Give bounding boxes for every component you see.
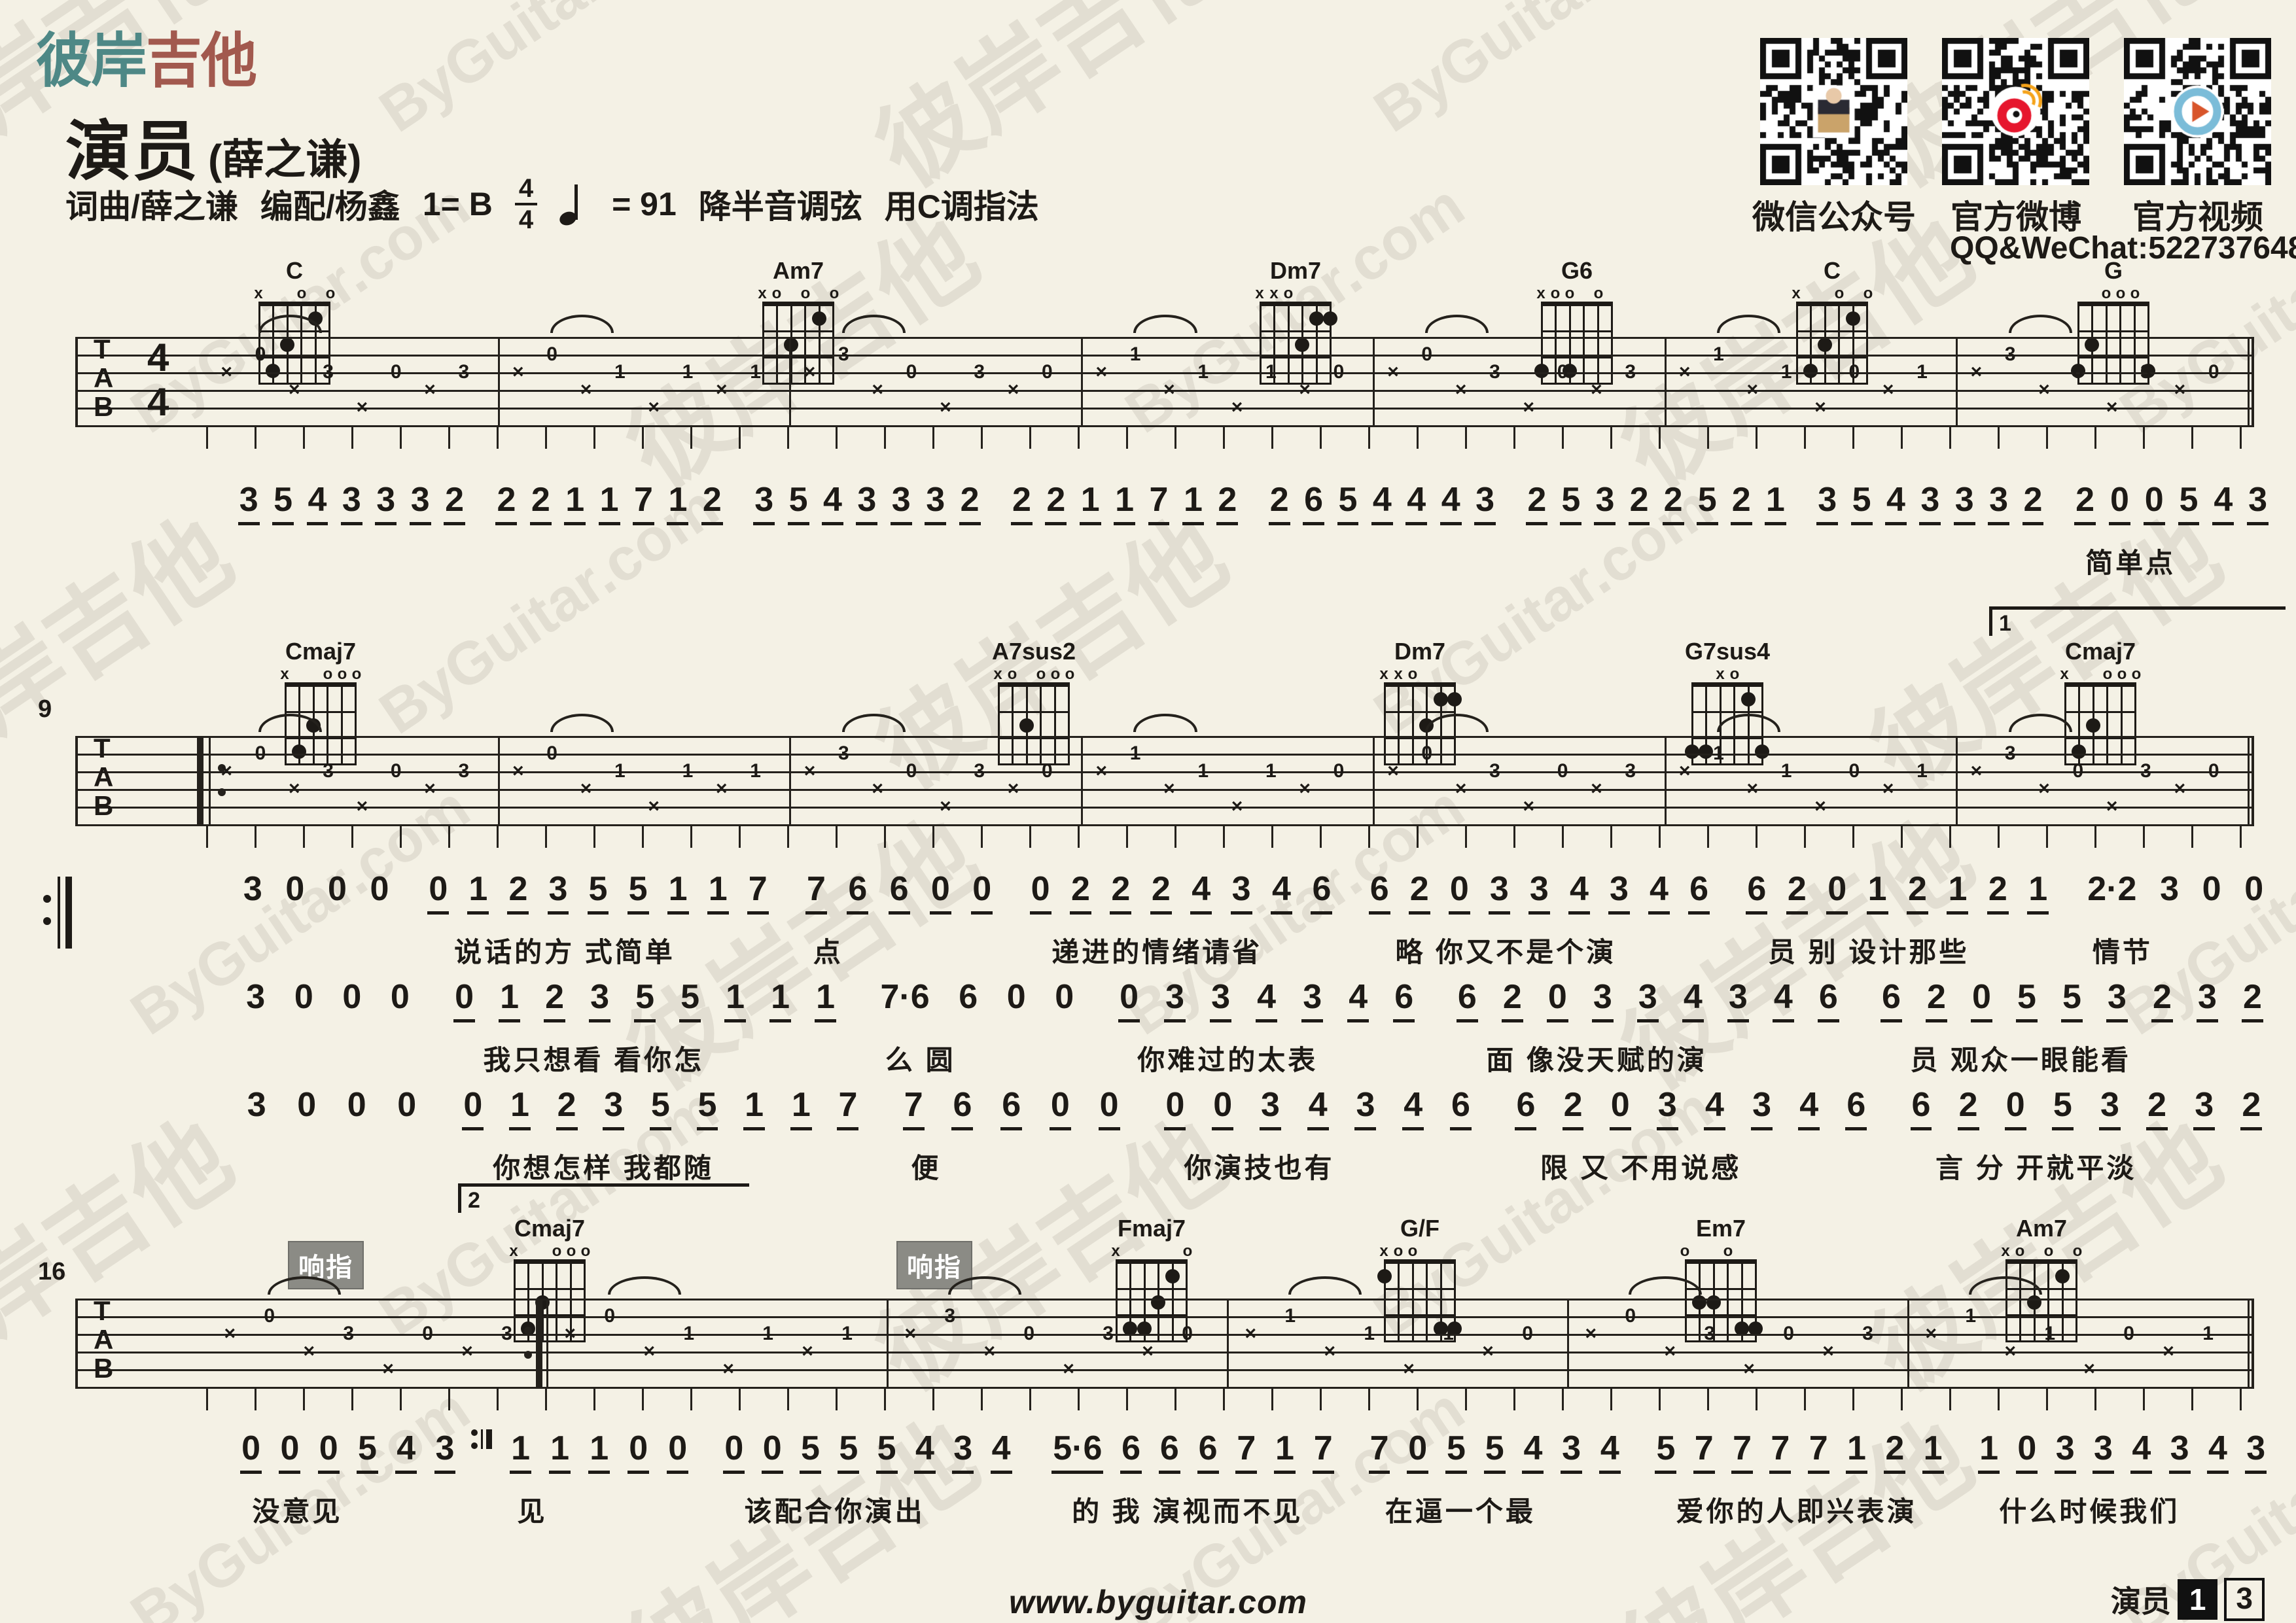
chord-marker: x <box>254 285 262 303</box>
jianpu-number: 5 <box>634 978 656 1022</box>
tab-note-glyph: × <box>512 760 524 782</box>
tab-note-glyph: 0 <box>391 361 402 383</box>
jianpu-number: 6 <box>1369 870 1390 915</box>
tab-note-glyph: 0 <box>1421 742 1432 765</box>
tab-note-glyph: 3 <box>1489 361 1500 383</box>
jianpu-number: 0 <box>284 870 306 911</box>
jianpu-number: 2 <box>1216 481 1238 525</box>
staff-left-edge <box>75 736 78 824</box>
jianpu-number: 0 <box>369 870 391 911</box>
lyric-text: 你演技也有 <box>1184 1146 1335 1186</box>
tab-note-glyph: 1 <box>1713 742 1724 765</box>
jianpu-number: 0 <box>1099 1086 1120 1130</box>
tab-note-glyph: 0 <box>1023 1323 1034 1345</box>
jianpu-number: 0 <box>296 1086 317 1127</box>
lyric-text: 爱你的人即兴表演 <box>1676 1490 1917 1529</box>
jianpu-number: 3 <box>246 1086 268 1127</box>
jianpu-number: 4 <box>914 1429 936 1474</box>
tab-note-glyph: × <box>224 1323 236 1345</box>
jianpu-number: 0 <box>1050 1086 1071 1130</box>
jianpu-number: 1 <box>1867 870 1888 915</box>
chord-marker: o <box>2116 285 2126 303</box>
tab-note-glyph: 0 <box>1333 760 1345 782</box>
jianpu-number: 2 <box>530 481 552 525</box>
jianpu-number: 3 <box>2099 1086 2121 1130</box>
jianpu-number: 4 <box>991 1429 1012 1474</box>
jianpu-number: 1 <box>1765 481 1786 525</box>
time-sig-bottom: 4 <box>147 383 169 422</box>
barline <box>1665 736 1667 824</box>
jianpu-number: 3 <box>753 481 775 525</box>
jianpu-measure: 11100见 <box>492 1429 704 1474</box>
jianpu-number: 1 <box>667 481 688 525</box>
tab-note-glyph: × <box>289 778 300 800</box>
tab-staff: TAB44×0×3×0×3×0×1×1×1×3×0×3×0×1×1×1×0×0×… <box>75 337 2254 428</box>
jianpu-measure: 76600便 <box>880 1086 1140 1130</box>
tab-clef-letter: T <box>94 1297 111 1325</box>
footer-url: www.byguitar.com <box>1009 1583 1307 1621</box>
jianpu-number: 1 <box>599 481 620 525</box>
jianpu-number: 7 <box>747 870 769 915</box>
jianpu-number: 0 <box>2243 870 2265 911</box>
jianpu-number: 5 <box>1445 1429 1467 1474</box>
jianpu-number: 0 <box>667 1429 688 1474</box>
staff-left-edge <box>75 1299 78 1387</box>
tab-note-glyph: × <box>424 778 436 800</box>
credits-label: 词曲/薛之谦 <box>65 181 238 228</box>
chord-name: Cmaj7 <box>268 638 373 665</box>
page-number-current: 1 <box>2178 1579 2218 1620</box>
tab-note-glyph: 3 <box>1625 760 1636 782</box>
jianpu-measure: 10334343什么时候我们 <box>1960 1429 2282 1474</box>
jianpu-measure: 2211712 <box>480 481 736 525</box>
chord-open-mute-markers: xooo <box>746 285 851 302</box>
chord-marker: o <box>297 285 307 303</box>
tab-note-glyph: 0 <box>2073 361 2084 383</box>
tab-note-glyph: 3 <box>459 361 470 383</box>
chord-name: Am7 <box>1989 1215 2094 1242</box>
jianpu-number: 5 <box>627 870 649 915</box>
jianpu-number: 7 <box>837 1086 858 1130</box>
jianpu-number: 2 <box>1663 481 1684 525</box>
jianpu-number: 2 <box>701 481 723 525</box>
jianpu-number: 1 <box>667 870 689 915</box>
jianpu-number: 4 <box>1682 978 1704 1022</box>
barline <box>1956 736 1958 824</box>
fret-line <box>2077 330 2149 332</box>
jianpu-measure: 02224346递进的情绪请省 <box>1011 870 1348 915</box>
chord-open-mute-markers: xooo <box>2048 665 2153 682</box>
jianpu-number: 1 <box>743 1086 765 1130</box>
chord-marker: o <box>567 1242 576 1261</box>
jianpu-number: 0 <box>327 870 348 911</box>
jianpu-number: 2 <box>1563 1086 1584 1130</box>
jianpu-number: 0 <box>318 1429 340 1474</box>
jianpu-number: 1 <box>549 1429 571 1474</box>
tab-note-glyph: × <box>1814 396 1826 419</box>
jianpu-number: 0 <box>930 870 951 915</box>
jianpu-number: 4 <box>1371 481 1393 525</box>
tab-note-glyph: 1 <box>1781 760 1792 782</box>
tab-note-glyph: × <box>648 396 660 419</box>
jianpu-number: 5 <box>1851 481 1873 525</box>
jianpu-number: 0 <box>627 1429 649 1474</box>
tab-note-glyph: 1 <box>1265 361 1277 383</box>
jianpu-number: 5 <box>272 481 294 525</box>
chord-marker: o <box>1863 285 1873 303</box>
note-stems <box>206 1388 2248 1410</box>
jianpu-number: 3 <box>242 870 264 911</box>
tab-note-glyph: × <box>2163 1340 2174 1363</box>
tab-note-glyph: × <box>802 1340 813 1363</box>
tab-note-glyph: 3 <box>2005 343 2016 366</box>
jianpu-number: 7 <box>1369 1429 1390 1474</box>
tab-note-glyph: 0 <box>546 742 557 765</box>
tab-note-glyph: × <box>357 396 368 419</box>
jianpu-number: 5 <box>357 1429 378 1474</box>
tab-note-glyph: 0 <box>906 361 917 383</box>
measure-number: 9 <box>38 695 52 724</box>
jianpu-number: 1 <box>1080 481 1101 525</box>
jianpu-number: 6 <box>1303 481 1324 525</box>
tab-note-glyph: × <box>1523 795 1534 818</box>
jianpu-number: 3 <box>603 1086 624 1130</box>
staff-line <box>75 337 2254 339</box>
fret-line <box>1384 1288 1456 1290</box>
chord-marker: o <box>1008 665 1017 684</box>
jianpu-number: 3 <box>2169 1429 2191 1474</box>
tab-note-glyph: × <box>1455 778 1467 800</box>
note-stems <box>206 427 2248 449</box>
jianpu-number: 4 <box>2212 481 2234 525</box>
jianpu-measure: 00555434该配合你演出 <box>706 1429 1027 1474</box>
jianpu-number: 0 <box>2005 1086 2026 1130</box>
jianpu-number: 6 <box>957 978 979 1019</box>
tab-note-glyph: × <box>940 396 951 419</box>
chord-marker: o <box>1551 285 1561 303</box>
jianpu-number: 0 <box>396 1086 417 1127</box>
chord-marker: o <box>1408 1242 1418 1261</box>
chord-marker: o <box>581 1242 591 1261</box>
tab-note-glyph: × <box>2106 795 2118 818</box>
jianpu-number: 2 <box>1070 870 1091 915</box>
tab-note-glyph: × <box>940 795 951 818</box>
jianpu-number: 6 <box>1688 870 1710 915</box>
jianpu-number: 6 <box>1159 1429 1180 1474</box>
lyric-text: 你想怎样 我都随 <box>493 1146 714 1186</box>
jianpu-number: 6 <box>1881 978 1902 1022</box>
lyric-text: 什么时候我们 <box>1999 1490 2180 1529</box>
chord-marker: x <box>2001 1242 2009 1261</box>
jianpu-measure: 012355111我只想看 看你怎 <box>433 978 855 1022</box>
jianpu-number: 5 <box>1697 481 1718 525</box>
jianpu-measure: 2211712 <box>995 481 1251 525</box>
jianpu-measure: 7·6600么 圆 <box>857 978 1095 1019</box>
vocal-repeat-sign <box>43 877 73 949</box>
jianpu-number: 2 <box>1526 481 1547 525</box>
jianpu-number: 3 <box>410 481 431 525</box>
tab-note-glyph: 3 <box>323 361 334 383</box>
barline <box>1907 1299 1909 1387</box>
chord-marker: x <box>758 285 766 303</box>
jianpu-number: 5 <box>679 978 701 1022</box>
chord-marker: o <box>2130 285 2140 303</box>
jianpu-number: 7 <box>903 1086 925 1130</box>
lyric-text: 你难过的太表 <box>1137 1038 1318 1078</box>
jianpu-number: 3 <box>1301 978 1323 1022</box>
tab-clef-letter: A <box>94 1326 113 1353</box>
chord-name: C <box>1780 257 1884 285</box>
fret-line <box>2064 711 2136 713</box>
jianpu-number: 2 <box>1110 870 1131 915</box>
jianpu-number: 4 <box>1568 870 1590 915</box>
jianpu-number: 1 <box>790 1086 812 1130</box>
jianpu-number: 0 <box>1053 978 1075 1019</box>
staff-right-edge <box>2252 337 2254 425</box>
jianpu-number: 6 <box>847 870 868 915</box>
jianpu-number: 4 <box>1522 1429 1544 1474</box>
tab-note-glyph: 0 <box>2123 1323 2134 1345</box>
chord-open-mute-markers: xooo <box>268 665 373 682</box>
slur-arc <box>1425 315 1489 333</box>
time-signature-top: 4 <box>515 175 537 205</box>
jianpu-number: 3 <box>1637 978 1659 1022</box>
qr-code-video <box>2124 38 2271 185</box>
jianpu-number: 4 <box>1307 1086 1329 1130</box>
jianpu-number: 3 <box>1474 481 1496 525</box>
tab-note-glyph: 0 <box>1848 760 1860 782</box>
jianpu-number: 2 <box>1011 481 1033 525</box>
jianpu-number: 0 <box>1971 978 1992 1022</box>
jianpu-number: 4 <box>2207 1429 2229 1474</box>
finger-dot <box>2055 1269 2070 1283</box>
chord-marker: o <box>352 665 362 684</box>
chord-name: G/F <box>1368 1215 1472 1242</box>
fret-line <box>514 1288 586 1290</box>
barline <box>789 337 791 425</box>
tab-note-glyph: 1 <box>1443 1323 1454 1345</box>
tab-note-glyph: 3 <box>1103 1323 1114 1345</box>
jianpu-number: 6 <box>1311 870 1332 915</box>
staff-line <box>75 807 2254 809</box>
tab-note-glyph: 1 <box>614 760 626 782</box>
chord-name: A7sus2 <box>981 638 1086 665</box>
tab-note-glyph: 1 <box>1916 760 1928 782</box>
chord-open-mute-markers: xoo <box>1368 1242 1472 1259</box>
jianpu-number: 2 <box>2151 978 2173 1022</box>
jianpu-measure: 000543没意见 <box>222 1429 471 1474</box>
jianpu-number: 5 <box>1484 1429 1506 1474</box>
jianpu-number: 0 <box>346 1086 368 1127</box>
jianpu-number: 4 <box>1190 870 1212 915</box>
jianpu-number: 7 <box>1693 1429 1715 1474</box>
tab-note-glyph: 0 <box>2208 760 2219 782</box>
chord-marker: o <box>338 665 347 684</box>
tab-note-glyph: × <box>289 379 300 401</box>
jianpu-number: 3 <box>1592 978 1614 1022</box>
tab-staff: TAB×0×3×0×3×0×1×1×1×3×0×3×0×1×1×1×0×0×3×… <box>75 736 2254 827</box>
time-sig-top: 4 <box>147 338 169 377</box>
jianpu-measure: 0334346你难过的太表 <box>1097 978 1434 1022</box>
jianpu-number: 3 <box>2245 1429 2267 1474</box>
staff-line <box>75 1369 2254 1371</box>
jianpu-number: 3 <box>1594 481 1616 525</box>
tab-note-glyph: 3 <box>1625 361 1636 383</box>
staff-right-edge <box>2252 736 2254 824</box>
jianpu-number: 5 <box>1337 481 1359 525</box>
jianpu-number: 3 <box>1489 870 1510 915</box>
jianpu-number: 3 <box>1727 978 1749 1022</box>
jianpu-measure: 2654443 <box>1253 481 1509 525</box>
tab-note-glyph: 0 <box>546 343 557 366</box>
staff-line <box>75 355 2254 357</box>
jianpu-number: 0 <box>1164 1086 1186 1130</box>
tab-note-glyph: × <box>1231 795 1243 818</box>
jianpu-number: 4 <box>1885 481 1907 525</box>
barline <box>1081 337 1083 425</box>
jianpu-number: 3 <box>238 481 260 525</box>
jianpu-number: 3 <box>2197 978 2218 1022</box>
jianpu-number: 4 <box>1402 1086 1424 1130</box>
jianpu-number: 7 <box>1769 1429 1791 1474</box>
staff-line <box>75 1316 2254 1318</box>
tab-note-glyph: × <box>1324 1340 1335 1363</box>
tab-note-glyph: × <box>1299 379 1311 401</box>
jianpu-number: 3 <box>589 978 610 1022</box>
tab-note-glyph: 1 <box>762 1323 773 1345</box>
finger-dot <box>1019 718 1034 733</box>
staff-line <box>75 824 2254 826</box>
finger-dot <box>1323 311 1337 326</box>
jianpu-number: 4 <box>1347 978 1369 1022</box>
jianpu-number: 7 <box>805 870 827 915</box>
jianpu-number: 1 <box>1922 1429 1944 1474</box>
tab-note-glyph: × <box>804 361 816 383</box>
jianpu-number: 3 <box>1816 481 1838 525</box>
slur-arc <box>1133 315 1197 333</box>
chord-marker: o <box>323 665 333 684</box>
chord-name: G <box>2061 257 2166 285</box>
tab-note-glyph: 1 <box>682 760 694 782</box>
chord-marker: o <box>326 285 336 303</box>
qr-code-weibo <box>1942 38 2089 185</box>
tab-note-glyph: × <box>221 760 232 782</box>
chord-open-mute-markers: ooo <box>2061 285 2166 302</box>
jianpu-measure: 012355117说话的方 式简单 <box>409 870 785 915</box>
tab-note-glyph: 0 <box>1783 1323 1794 1345</box>
tab-note-glyph: 0 <box>1848 361 1860 383</box>
lyric-text: 面 像没天赋的演 <box>1486 1038 1707 1078</box>
tab-note-glyph: × <box>1142 1340 1154 1363</box>
chord-open-mute-markers: xooo <box>497 1242 602 1259</box>
barline <box>498 337 500 425</box>
tab-note-glyph: 3 <box>944 1305 955 1327</box>
tab-note-glyph: 0 <box>1042 361 1053 383</box>
chord-marker: o <box>801 285 811 303</box>
jianpu-number: 7·6 <box>879 978 930 1019</box>
jianpu-number: 0 <box>1449 870 1470 915</box>
vocal-repeat-bar <box>65 877 72 949</box>
tempo-value: = 91 <box>612 185 677 223</box>
jianpu-number: 6 <box>951 1086 973 1130</box>
chord-marker: x <box>1716 665 1724 684</box>
qr-label-wechat: 微信公众号 <box>1739 191 1929 238</box>
chord-marker: o <box>1408 665 1418 684</box>
jianpu-measure: 620334346略 你又不是个演 <box>1351 870 1726 915</box>
jianpu-number: 4 <box>1256 978 1277 1022</box>
tab-note-glyph: 0 <box>391 760 402 782</box>
jianpu-number: 3 <box>1164 978 1186 1022</box>
tab-note-glyph: 3 <box>323 760 334 782</box>
tab-note-glyph: 0 <box>604 1305 615 1327</box>
chord-marker: o <box>1036 665 1046 684</box>
lyric-text: 递进的情绪请省 <box>1051 930 1262 970</box>
jianpu-number: 7 <box>1235 1429 1257 1474</box>
chord-marker: o <box>1284 285 1294 303</box>
tab-note-glyph: × <box>2106 396 2118 419</box>
begin-repeat-thin <box>209 736 211 824</box>
jianpu-number: 3 <box>1657 1086 1678 1130</box>
jianpu-number: 3 <box>2055 1429 2076 1474</box>
tab-clef-letter: B <box>94 1355 113 1382</box>
jianpu-number: 3 <box>1561 1429 1582 1474</box>
logo-text-part1: 彼岸 <box>36 28 146 94</box>
jianpu-number: 3 <box>2159 870 2180 911</box>
jianpu-number: 5 <box>2016 978 2038 1022</box>
byguitar-logo: 彼岸吉他 <box>36 12 256 98</box>
jianpu-number: 0 <box>462 1086 484 1130</box>
lyric-text: 在逼一个最 <box>1385 1490 1536 1529</box>
slur-arc <box>1133 714 1197 732</box>
jianpu-line: 3000012355117你想怎样 我都随76600便0034346你演技也有6… <box>222 1086 2284 1130</box>
chord-marker: x <box>1394 665 1402 684</box>
jianpu-number: 2 <box>1409 870 1430 915</box>
tab-note-glyph: × <box>1095 760 1107 782</box>
chord-marker: x <box>1379 665 1388 684</box>
tab-note-glyph: × <box>512 361 524 383</box>
tab-note-glyph: × <box>2174 379 2186 401</box>
jianpu-number: 2 <box>1786 870 1808 915</box>
jianpu-measure: 200543简单点 <box>2058 481 2282 525</box>
tab-note-glyph: 1 <box>2044 1323 2055 1345</box>
tab-note-glyph: × <box>357 795 368 818</box>
tab-note-glyph: × <box>2174 778 2186 800</box>
tab-note-glyph: × <box>1814 795 1826 818</box>
jianpu-number: 1 <box>1114 481 1135 525</box>
jianpu-measure: 3543332 <box>1801 481 2057 525</box>
barline <box>1081 736 1083 824</box>
jianpu-number: 0 <box>762 1429 783 1474</box>
tab-note-glyph: × <box>580 379 592 401</box>
tuning-label: 降半音调弦 <box>699 181 862 228</box>
chord-open-mute-markers: xo <box>1675 665 1780 682</box>
jianpu-number: 4 <box>1599 1429 1621 1474</box>
jianpu-number: 4 <box>1648 870 1670 915</box>
jianpu-number: 0 <box>1006 978 1027 1019</box>
barline <box>498 736 500 824</box>
jianpu-number: 6 <box>1120 1429 1142 1474</box>
chord-marker: x <box>1255 285 1263 303</box>
jianpu-number: 0 <box>2109 481 2130 525</box>
begin-repeat-thick <box>197 736 203 824</box>
tab-note-glyph: × <box>2038 778 2050 800</box>
jianpu-number: 0 <box>1030 870 1051 915</box>
tab-note-glyph: 0 <box>422 1323 433 1345</box>
barline <box>887 1299 889 1387</box>
lyric-text: 员 别 设计那些 <box>1768 930 1969 970</box>
barline <box>2248 337 2250 425</box>
chord-marker: o <box>2102 285 2111 303</box>
